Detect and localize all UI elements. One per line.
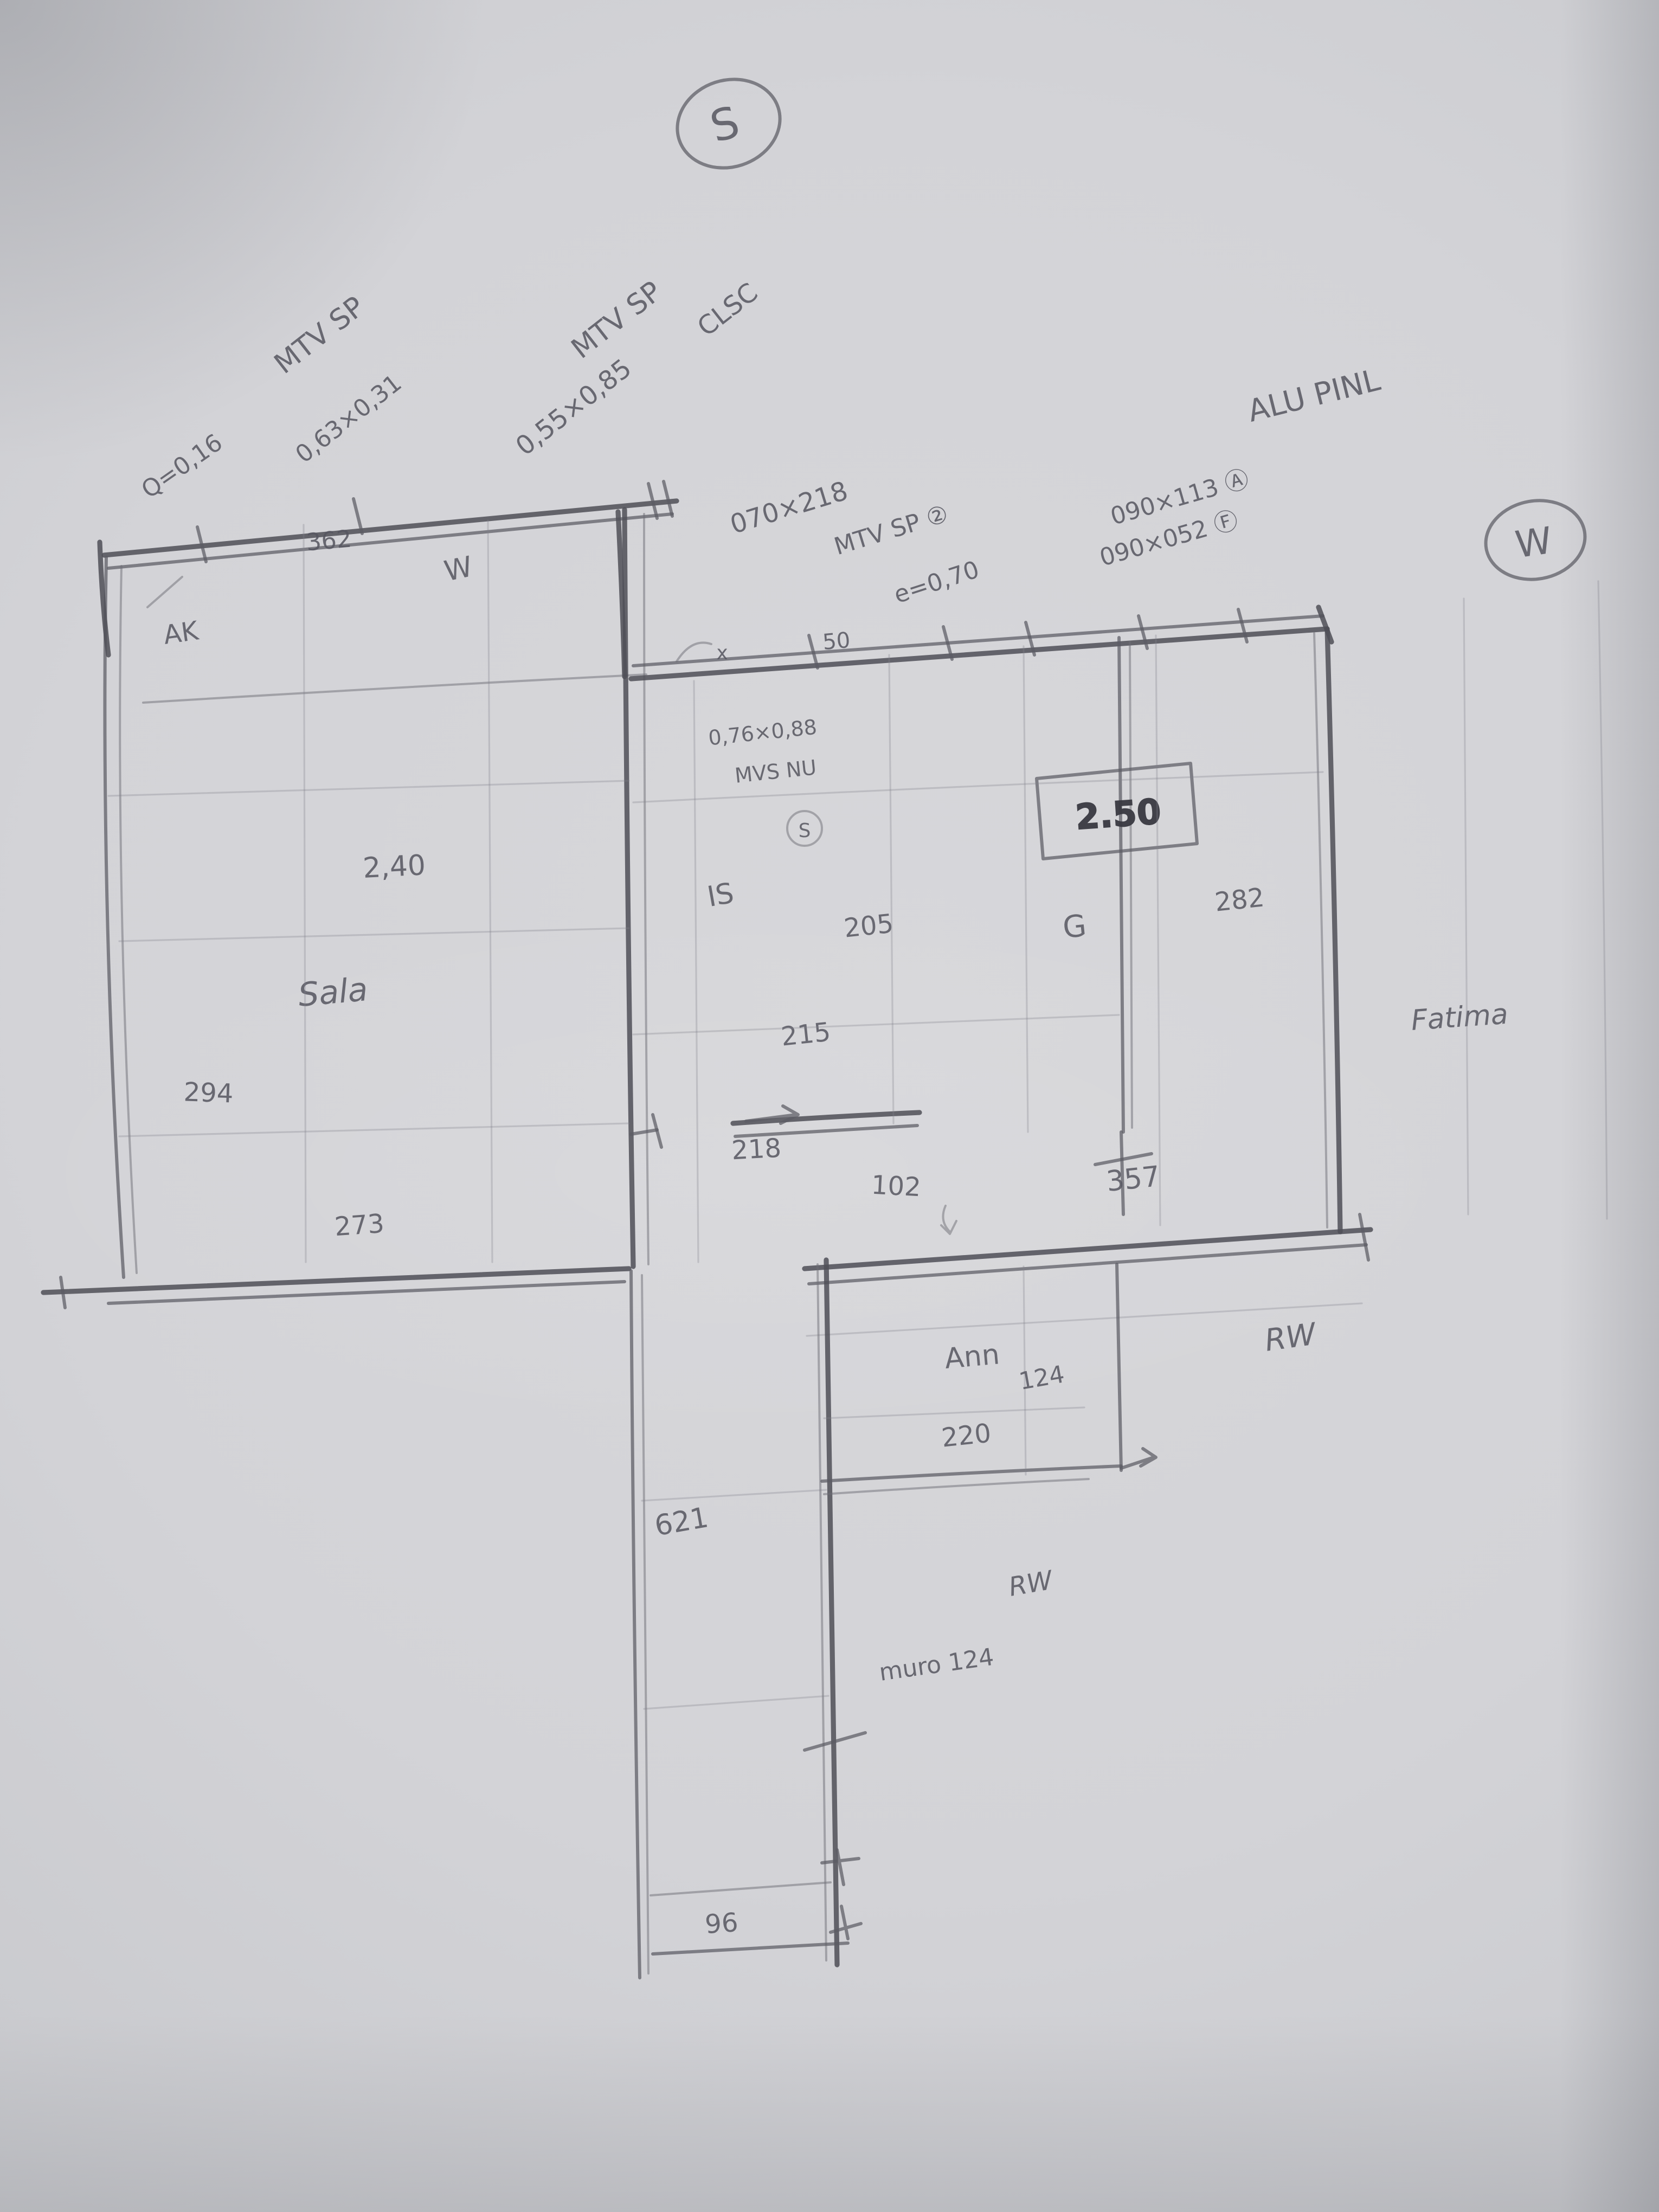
dim-205: 205	[843, 908, 895, 943]
boxed-value: 2.50	[1074, 792, 1162, 838]
wall-stub	[631, 1130, 657, 1134]
guide-line	[889, 655, 893, 1123]
label-ann: Ann	[943, 1338, 1001, 1375]
paper-speck	[1290, 1656, 1295, 1662]
wall-right-inner	[1314, 633, 1327, 1227]
guide-line	[1024, 646, 1028, 1132]
wall-ann-right	[1117, 1264, 1121, 1470]
label-w-mark: W	[441, 550, 475, 588]
label-rw-upper: RW	[1263, 1316, 1320, 1359]
wall-ann-bottom-inner	[824, 1479, 1089, 1494]
floor-plan-sketch: S W MTV SP 0,63×0,31 Q=0,16 MTV SP CLSC …	[0, 0, 1659, 2212]
wall-corridor-bottom	[653, 1943, 848, 1954]
wall-sala-bottom-outer	[43, 1269, 629, 1293]
wall-right-outer	[1327, 629, 1340, 1232]
guide-line	[119, 1123, 629, 1136]
dim-218: 218	[731, 1133, 782, 1166]
note-topleft-title: MTV SP	[268, 291, 371, 381]
wall-corridor-left	[631, 1271, 640, 1978]
note-window-dim: 0,76×0,88	[707, 715, 818, 750]
guide-line	[651, 1882, 831, 1895]
dim-sala-height: 2,40	[362, 849, 427, 885]
dim-357: 357	[1105, 1160, 1162, 1198]
dim-273: 273	[333, 1208, 385, 1242]
wall-divider	[1119, 638, 1123, 1132]
note-topleft-dim: 0,63×0,31	[291, 369, 407, 469]
dim-282: 282	[1213, 882, 1266, 917]
dim-tick	[61, 1277, 65, 1308]
guide-line	[644, 1696, 828, 1709]
paper-speck	[1483, 2183, 1488, 2189]
label-sala: Sala	[297, 970, 369, 1014]
strip-bottom-line	[143, 674, 646, 703]
small-arrow	[941, 1206, 956, 1234]
wall-sala-right-inner	[644, 514, 648, 1264]
dim-tick	[1360, 1214, 1368, 1260]
wall-topleft-inner	[108, 514, 672, 568]
dim-220: 220	[940, 1418, 993, 1453]
note-muro: muro 124	[877, 1643, 995, 1687]
wall-mid-top-outer	[631, 629, 1327, 679]
label-ak: AK	[162, 615, 201, 651]
note-door-label: MTV SP ②	[831, 500, 951, 561]
guide-line	[642, 1490, 826, 1501]
door-mark-50: 50	[822, 628, 852, 655]
wall-corridor-left-inner	[642, 1275, 648, 1973]
guide-line	[304, 525, 306, 1262]
guide-line	[694, 681, 698, 1262]
wall-sala-right-outer	[625, 510, 633, 1266]
paper-sheet: S W MTV SP 0,63×0,31 Q=0,16 MTV SP CLSC …	[0, 0, 1659, 2212]
note-door-dim: 070×218	[726, 475, 851, 540]
wall-corridor-right	[826, 1260, 837, 1965]
guide-line	[1156, 635, 1160, 1225]
corner-arrow	[1121, 1449, 1156, 1468]
note-topmid-title: MTV SP	[565, 275, 668, 365]
dim-tick-cross	[822, 1850, 859, 1885]
note-window-mark: S	[799, 820, 811, 842]
guide-line	[119, 928, 629, 941]
note-window-label: MVS NU	[734, 755, 818, 788]
compass-west-label: W	[1513, 519, 1555, 567]
note-topright-title: ALU PINL	[1244, 362, 1384, 429]
label-rw-lower: RW	[1006, 1565, 1056, 1602]
dim-362: 362	[305, 525, 353, 556]
guide-line	[488, 520, 492, 1262]
guide-line-far-right	[1598, 581, 1607, 1219]
note-topmid-note: CLSC	[692, 277, 763, 343]
dim-621: 621	[652, 1501, 711, 1542]
dim-294: 294	[183, 1077, 234, 1109]
door-swing-arc	[677, 642, 711, 661]
wall-divider-inner	[1130, 642, 1132, 1128]
label-g-mark: G	[1061, 908, 1088, 946]
note-wall-thickness: e=0,70	[891, 556, 983, 609]
door-mark-x: x	[716, 642, 728, 664]
note-topleft-q: Q=0,16	[137, 429, 228, 504]
guide-line	[824, 1407, 1084, 1418]
guide-line	[1464, 599, 1468, 1214]
wall-corridor-right-inner	[818, 1264, 826, 1960]
dim-tick	[664, 481, 672, 516]
dim-215: 215	[780, 1017, 832, 1052]
note-topmid-dim: 0,55×0,85	[510, 353, 638, 461]
guide-line	[108, 781, 629, 796]
wall-left-inner	[120, 566, 137, 1273]
wall-topleft-outer	[104, 501, 677, 555]
compass-south-label: S	[705, 97, 744, 152]
label-is: IS	[705, 877, 736, 914]
dim-96: 96	[704, 1907, 739, 1940]
dim-102: 102	[871, 1170, 922, 1203]
label-fatima: Fatima	[1410, 998, 1509, 1037]
guide-line	[633, 1015, 1119, 1034]
dim-tick	[353, 499, 362, 533]
wall-mid-top-inner	[633, 616, 1323, 666]
check-mark	[147, 577, 182, 607]
